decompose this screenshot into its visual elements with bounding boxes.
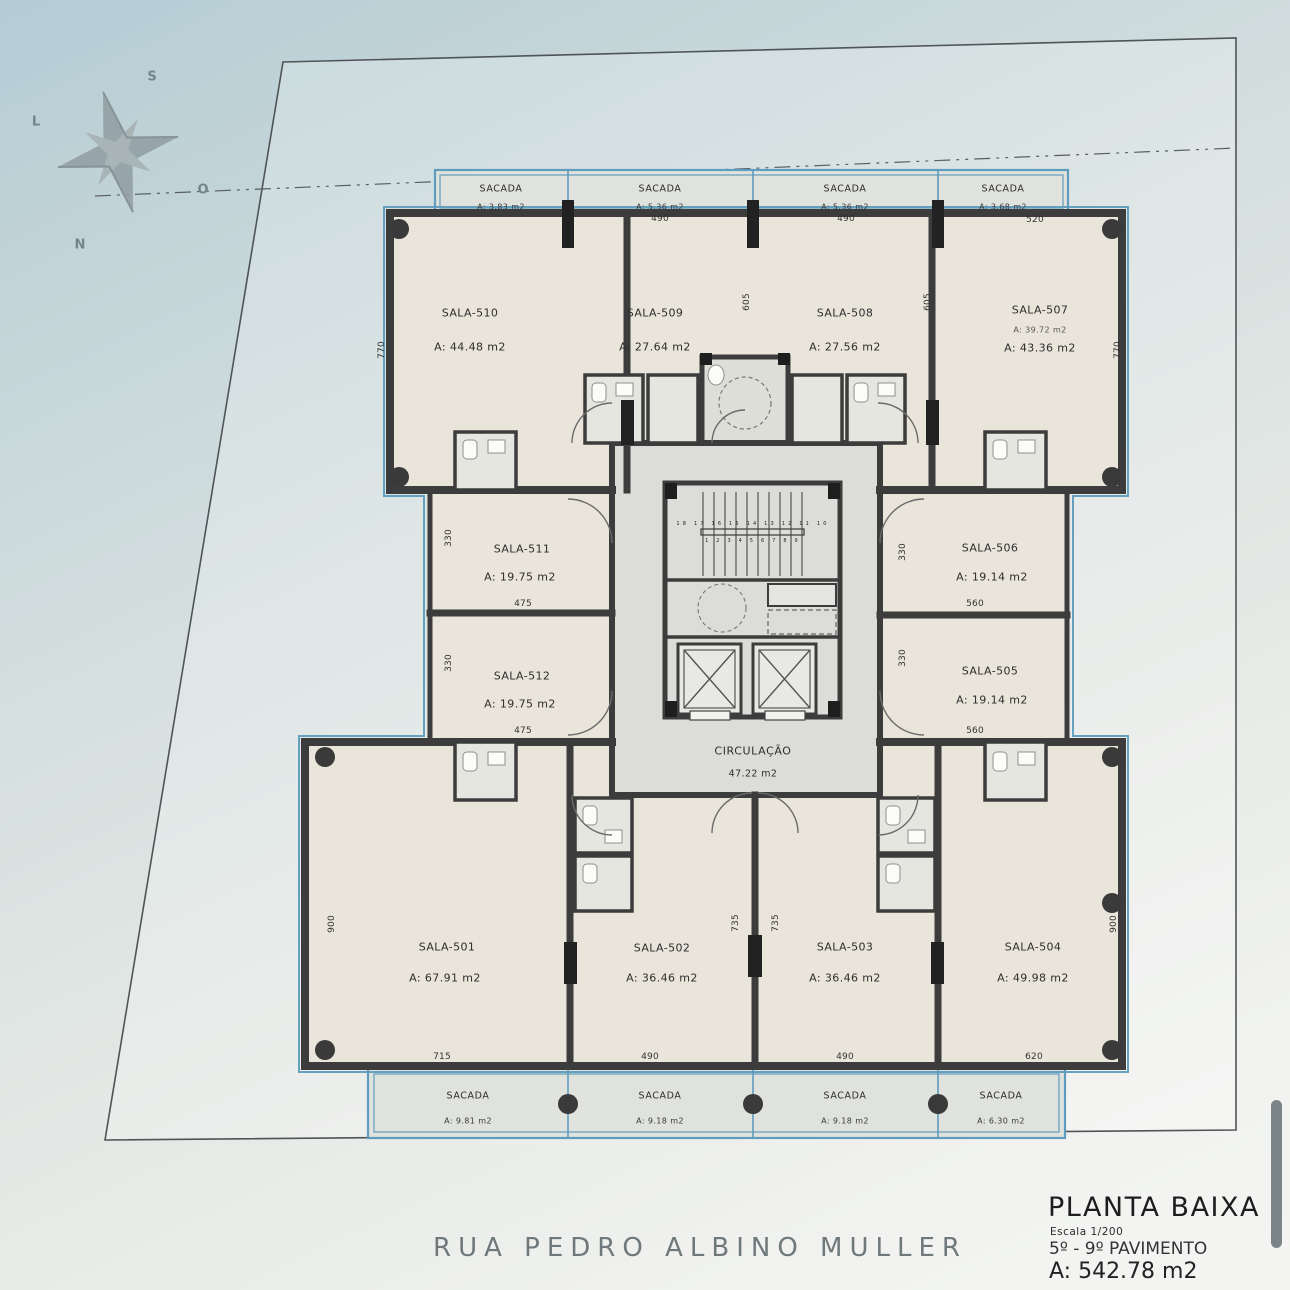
dim-770: 770 (1113, 341, 1123, 359)
room-area-sala-510: A: 44.48 m2 (434, 341, 506, 354)
room-name-sala-512: SALA-512 (494, 670, 551, 683)
dim-735: 735 (771, 914, 781, 932)
dim-475: 475 (514, 599, 532, 609)
dim-605: 605 (742, 293, 752, 311)
balcony-area: A: 9.18 m2 (821, 1117, 869, 1126)
street-name: RUA PEDRO ALBINO MULLER (433, 1233, 967, 1263)
balcony-label: SACADA (447, 1091, 490, 1102)
dim-560: 560 (966, 599, 984, 609)
compass-north-label: N (75, 238, 86, 253)
floor-plan-page: S L O N SACADA A: 3.83 m2 SACADA A: 5.36… (0, 0, 1290, 1290)
compass-west-label: O (197, 183, 208, 198)
compass-rose-icon (43, 77, 193, 227)
compass-south-label: S (147, 70, 156, 85)
balcony-area: A: 6.30 m2 (977, 1117, 1025, 1126)
balcony-label: SACADA (480, 184, 523, 195)
dim-330: 330 (444, 529, 454, 547)
dim-330: 330 (898, 649, 908, 667)
dim-490: 490 (641, 1052, 659, 1062)
plan-total-area: A: 542.78 m2 (1049, 1259, 1197, 1284)
plan-floor-range: 5º - 9º PAVIMENTO (1049, 1239, 1207, 1259)
room-area-sala-511: A: 19.75 m2 (484, 571, 556, 584)
dim-605: 605 (923, 293, 933, 311)
balcony-label: SACADA (824, 1091, 867, 1102)
balcony-area: A: 3.83 m2 (477, 203, 525, 212)
room-area-sala-509: A: 27.64 m2 (619, 341, 691, 354)
room-name-sala-502: SALA-502 (634, 942, 691, 955)
room-area-sala-507: A: 43.36 m2 (1004, 342, 1076, 355)
balcony-area: A: 3.68 m2 (979, 203, 1027, 212)
room-area-sala-504: A: 49.98 m2 (997, 972, 1069, 985)
dim-490: 490 (651, 214, 669, 224)
balcony-label: SACADA (980, 1091, 1023, 1102)
dim-735: 735 (731, 914, 741, 932)
circulation-name: CIRCULAÇÃO (714, 745, 791, 758)
room-area-sala-506: A: 19.14 m2 (956, 571, 1028, 584)
balcony-area: A: 9.81 m2 (444, 1117, 492, 1126)
room-name-sala-511: SALA-511 (494, 543, 551, 556)
compass-east-label: L (32, 115, 40, 130)
room-name-sala-507: SALA-507 (1012, 304, 1069, 317)
dim-900: 900 (327, 915, 337, 933)
dim-520: 520 (1026, 215, 1044, 225)
stair-numbers-down: 18 17 16 15 14 13 12 11 10 (676, 521, 829, 527)
room-name-sala-505: SALA-505 (962, 665, 1019, 678)
plan-title: PLANTA BAIXA (1048, 1192, 1260, 1223)
dim-490: 490 (837, 214, 855, 224)
balcony-label: SACADA (639, 1091, 682, 1102)
dim-560: 560 (966, 726, 984, 736)
balcony-row-bottom (368, 1068, 1065, 1138)
room-area-sala-512: A: 19.75 m2 (484, 698, 556, 711)
room-name-sala-503: SALA-503 (817, 941, 874, 954)
dim-715: 715 (433, 1052, 451, 1062)
balcony-area: A: 9.18 m2 (636, 1117, 684, 1126)
room-name-sala-501: SALA-501 (419, 941, 476, 954)
dim-770: 770 (377, 341, 387, 359)
circulation-area: 47.22 m2 (729, 769, 778, 780)
room-name-sala-504: SALA-504 (1005, 941, 1062, 954)
room-name-sala-508: SALA-508 (817, 307, 874, 320)
dim-330: 330 (444, 654, 454, 672)
room-note-sala-507: A: 39.72 m2 (1013, 326, 1066, 335)
scrollbar-thumb[interactable] (1271, 1100, 1282, 1248)
balcony-area: A: 5.36 m2 (636, 203, 684, 212)
room-name-sala-510: SALA-510 (442, 307, 499, 320)
plan-scale: Escala 1/200 (1050, 1226, 1123, 1238)
room-area-sala-502: A: 36.46 m2 (626, 972, 698, 985)
dim-330: 330 (898, 543, 908, 561)
room-area-sala-503: A: 36.46 m2 (809, 972, 881, 985)
balcony-label: SACADA (982, 184, 1025, 195)
dim-620: 620 (1025, 1052, 1043, 1062)
room-area-sala-508: A: 27.56 m2 (809, 341, 881, 354)
room-area-sala-505: A: 19.14 m2 (956, 694, 1028, 707)
dim-475: 475 (514, 726, 532, 736)
room-name-sala-506: SALA-506 (962, 542, 1019, 555)
dim-490: 490 (836, 1052, 854, 1062)
balcony-label: SACADA (639, 184, 682, 195)
dim-900: 900 (1109, 915, 1119, 933)
balcony-label: SACADA (824, 184, 867, 195)
room-area-sala-501: A: 67.91 m2 (409, 972, 481, 985)
stair-numbers-up: 1 2 3 4 5 6 7 8 9 (705, 538, 801, 544)
balcony-area: A: 5.36 m2 (821, 203, 869, 212)
room-name-sala-509: SALA-509 (627, 307, 684, 320)
